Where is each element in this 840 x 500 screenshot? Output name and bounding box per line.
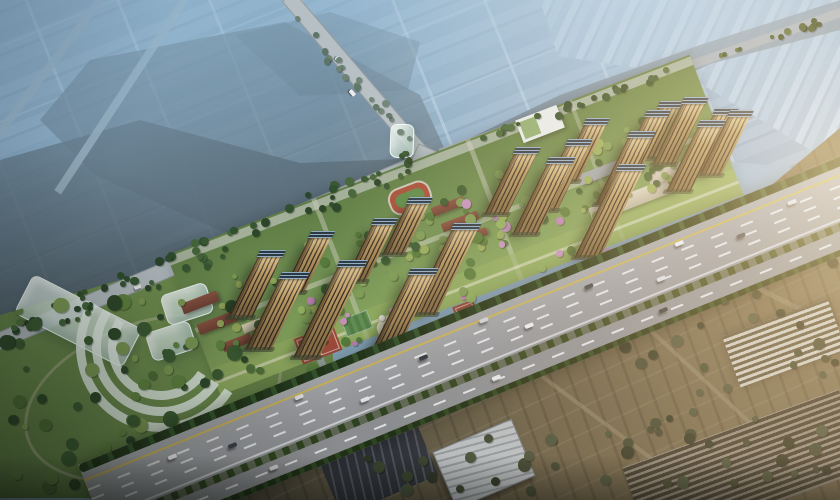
vignette: [0, 0, 840, 500]
aerial-development-render: [0, 0, 840, 500]
